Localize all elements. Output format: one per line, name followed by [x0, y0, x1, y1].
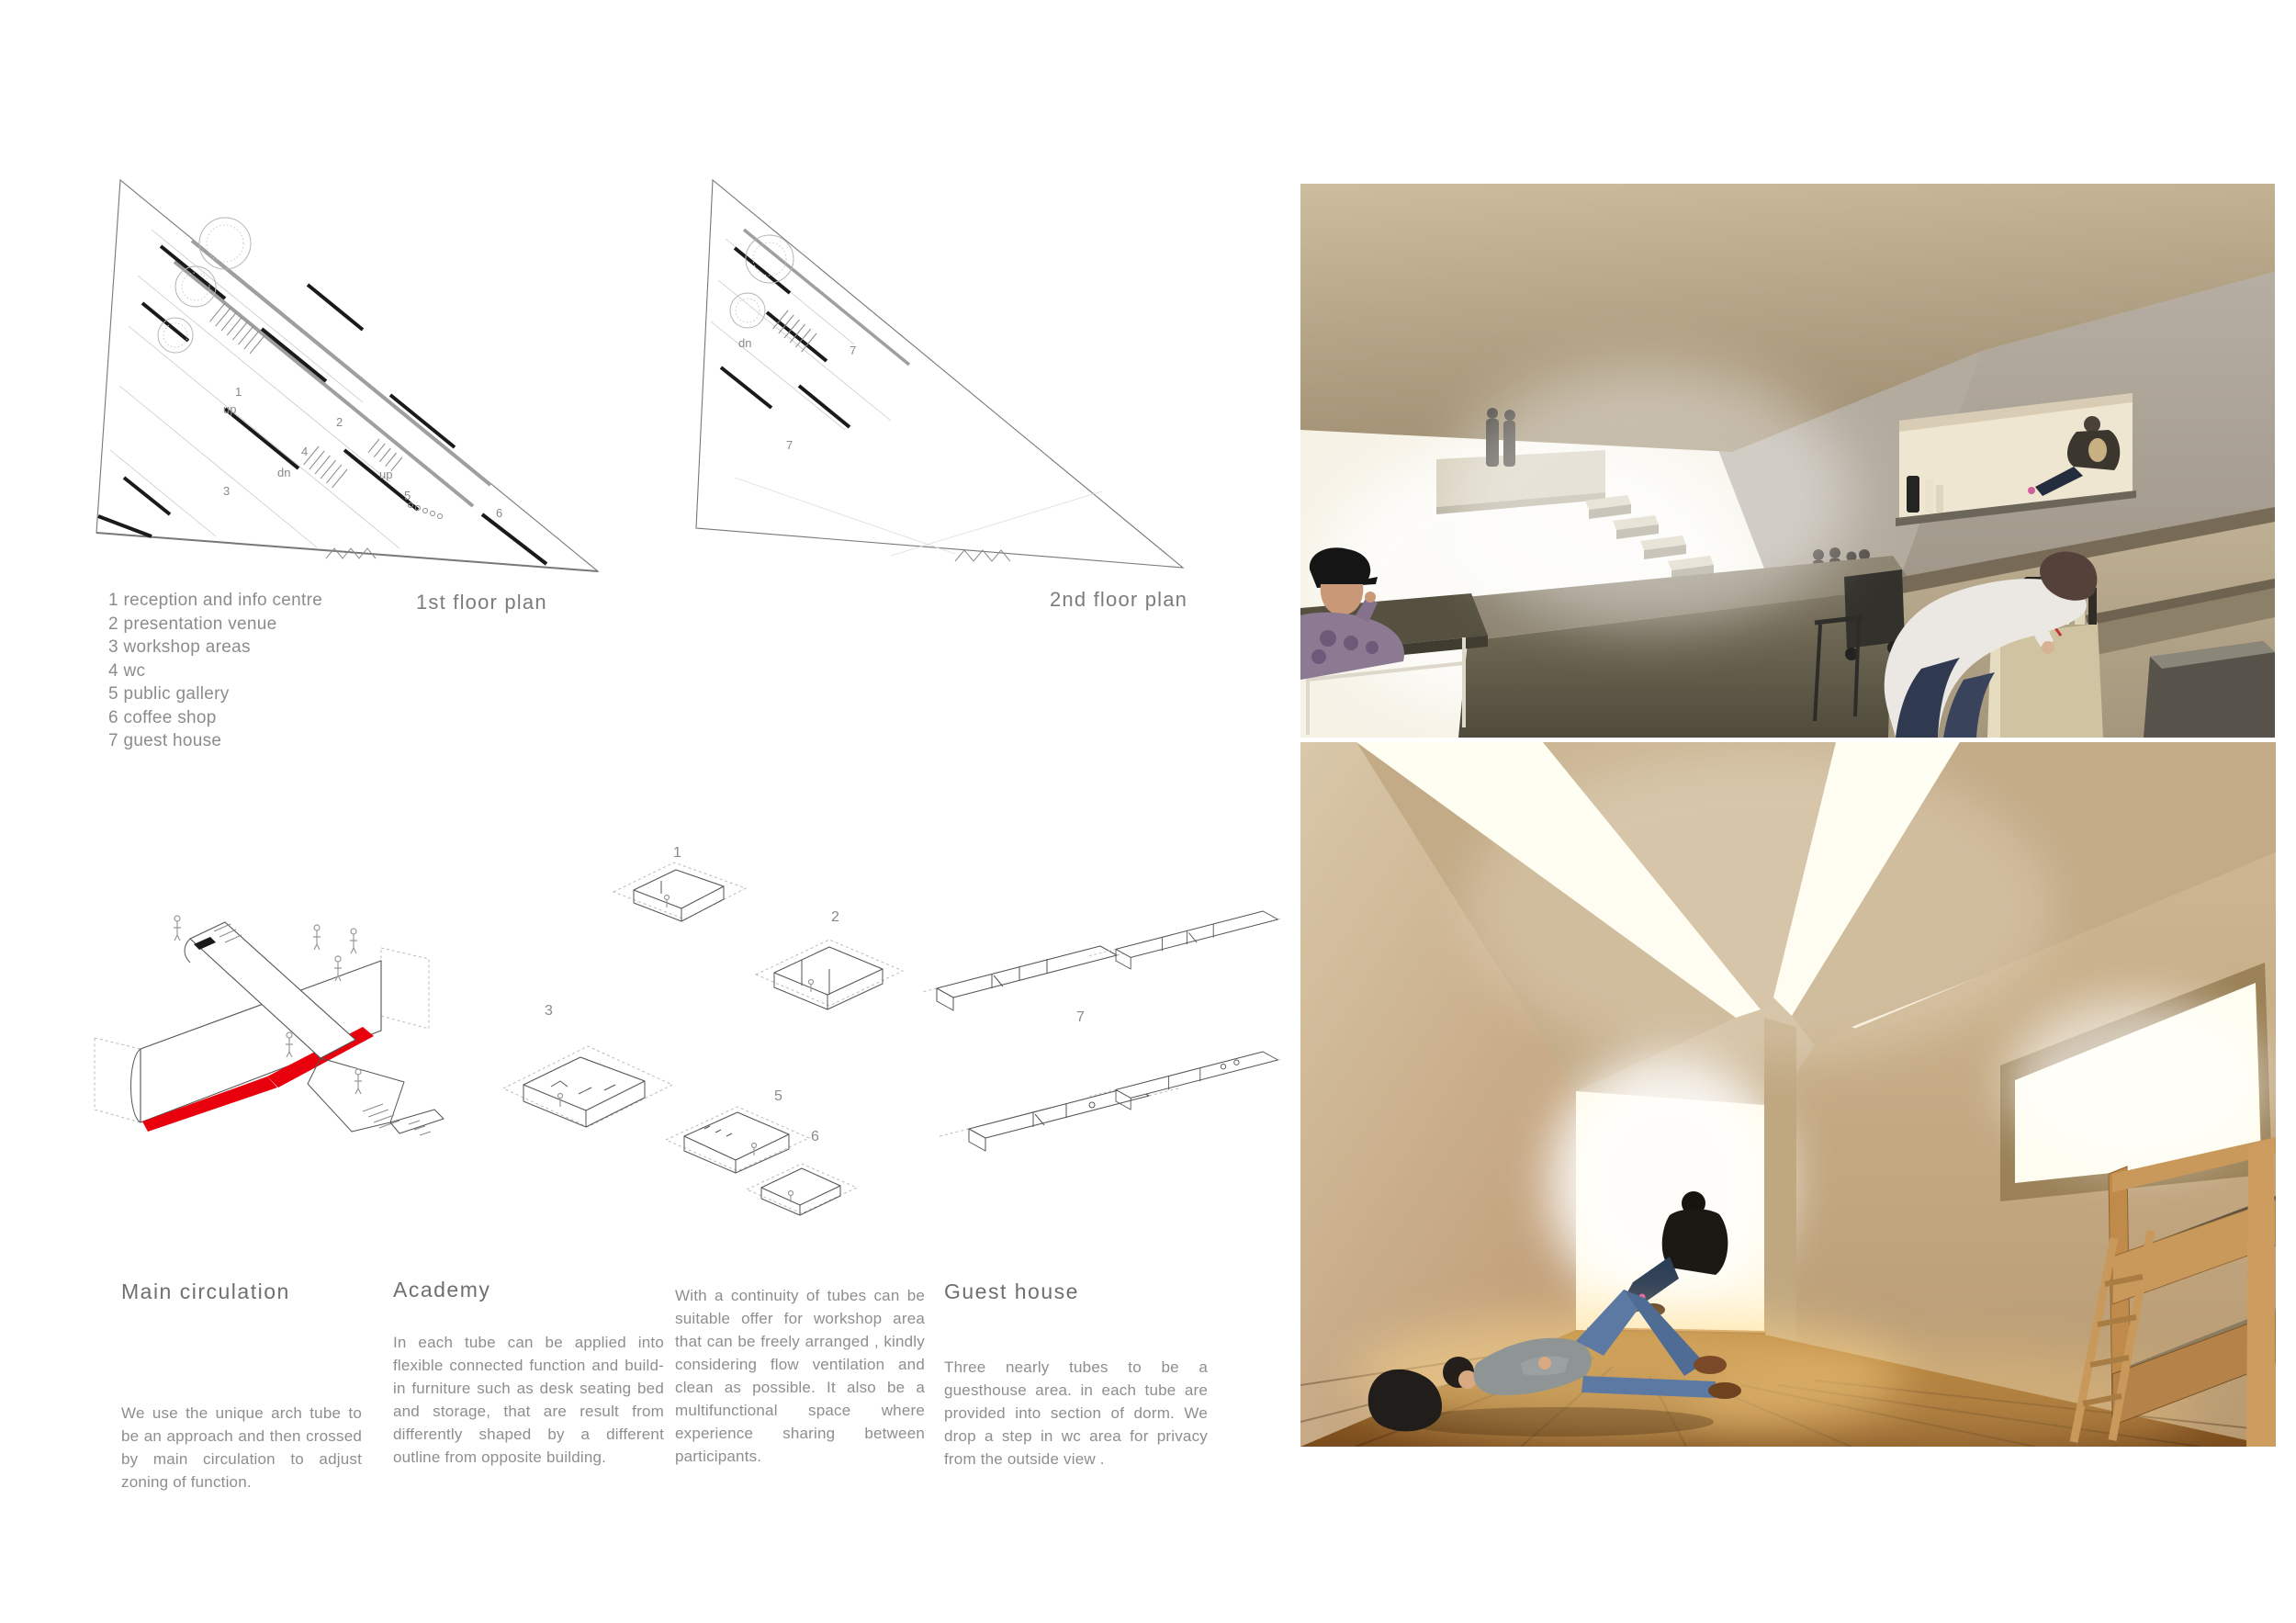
light-glow [1447, 367, 1851, 625]
section-guest-house: Guest house Three nearly tubes to be a g… [944, 1279, 1208, 1471]
section-heading: Main circulation [121, 1279, 362, 1304]
plan-spine-walls [744, 230, 909, 365]
plan-room-label: 2 [336, 415, 343, 429]
diagram-number: 1 [673, 845, 681, 861]
diagram-number: 5 [774, 1088, 782, 1104]
diagram-number: 2 [831, 909, 839, 925]
section-main-circulation: Main circulation We use the unique arch … [121, 1279, 362, 1493]
section-body: Three nearly tubes to be a guesthouse ar… [944, 1356, 1208, 1471]
section-body: We use the unique arch tube to be an app… [121, 1402, 362, 1493]
plan-room-label: 5 [404, 489, 411, 502]
diagram-number: 3 [545, 1003, 553, 1019]
plan-spine-walls [174, 241, 490, 506]
ambient-glow [1466, 751, 2054, 1064]
render-dorm-interior [1300, 742, 2276, 1447]
plan-outline [696, 180, 1183, 568]
diagram-number: 7 [1076, 1009, 1085, 1025]
plan-direction-label: dn [277, 466, 290, 479]
legend-item: 7 guest house [108, 729, 322, 753]
legend-item: 5 public gallery [108, 682, 322, 706]
legend-item: 6 coffee shop [108, 706, 322, 730]
tree-icon [730, 235, 793, 328]
plan-legend: 1 reception and info centre 2 presentati… [108, 589, 322, 753]
legend-item: 1 reception and info centre [108, 589, 322, 613]
legend-item: 4 wc [108, 659, 322, 683]
plan-outline [96, 180, 598, 571]
academy-tube-6 [747, 1164, 857, 1215]
legend-item: 2 presentation venue [108, 613, 322, 637]
render-gallery-interior [1300, 184, 2275, 738]
section-workshop: With a continuity of tubes can be suitab… [675, 1284, 925, 1468]
guesthouse-tube [923, 946, 1146, 1010]
academy-tube-5 [666, 1107, 809, 1173]
plan-hatch-lines [711, 239, 1102, 556]
second-floor-plan-drawing: dn 7 7 [680, 175, 1221, 583]
academy-tube-1 [613, 862, 746, 921]
plan-room-label: 7 [786, 438, 793, 452]
presentation-board: 1 up 2 dn up 3 4 5 6 dn 7 [0, 0, 2296, 1623]
section-academy: Academy In each tube can be applied into… [393, 1278, 664, 1469]
plan-room-label: 3 [223, 484, 230, 498]
plan-room-label: 1 [235, 385, 242, 399]
section-heading: Academy [393, 1278, 664, 1302]
academy-tube-3 [503, 1046, 672, 1127]
academy-tube-2 [756, 940, 903, 1009]
second-floor-plan-title: 2nd floor plan [1050, 588, 1187, 612]
plan-direction-label: up [223, 402, 236, 416]
plan-room-label: 7 [850, 344, 856, 357]
legend-item: 3 workshop areas [108, 636, 322, 659]
plan-direction-label: dn [738, 336, 751, 350]
diagram-number: 6 [811, 1129, 819, 1144]
plan-room-label: 6 [496, 506, 502, 520]
plan-black-walls [98, 246, 546, 564]
section-heading: Guest house [944, 1279, 1208, 1304]
guesthouse-diagrams: 7 [923, 859, 1281, 1180]
guesthouse-tube [1089, 911, 1281, 969]
section-body: With a continuity of tubes can be suitab… [675, 1284, 925, 1468]
stair-walkway [308, 1058, 444, 1135]
lectern-bin [2144, 641, 2275, 738]
guesthouse-tube [940, 1087, 1178, 1151]
plan-direction-label: up [379, 468, 392, 481]
academy-diagrams: 1 2 3 5 6 [491, 822, 905, 1235]
plan-room-label: 4 [301, 445, 308, 458]
section-body: In each tube can be applied into flexibl… [393, 1331, 664, 1469]
main-circulation-diagram [87, 891, 445, 1176]
first-floor-plan-drawing: 1 up 2 dn up 3 4 5 6 [87, 175, 629, 583]
first-floor-plan-title: 1st floor plan [416, 591, 547, 614]
